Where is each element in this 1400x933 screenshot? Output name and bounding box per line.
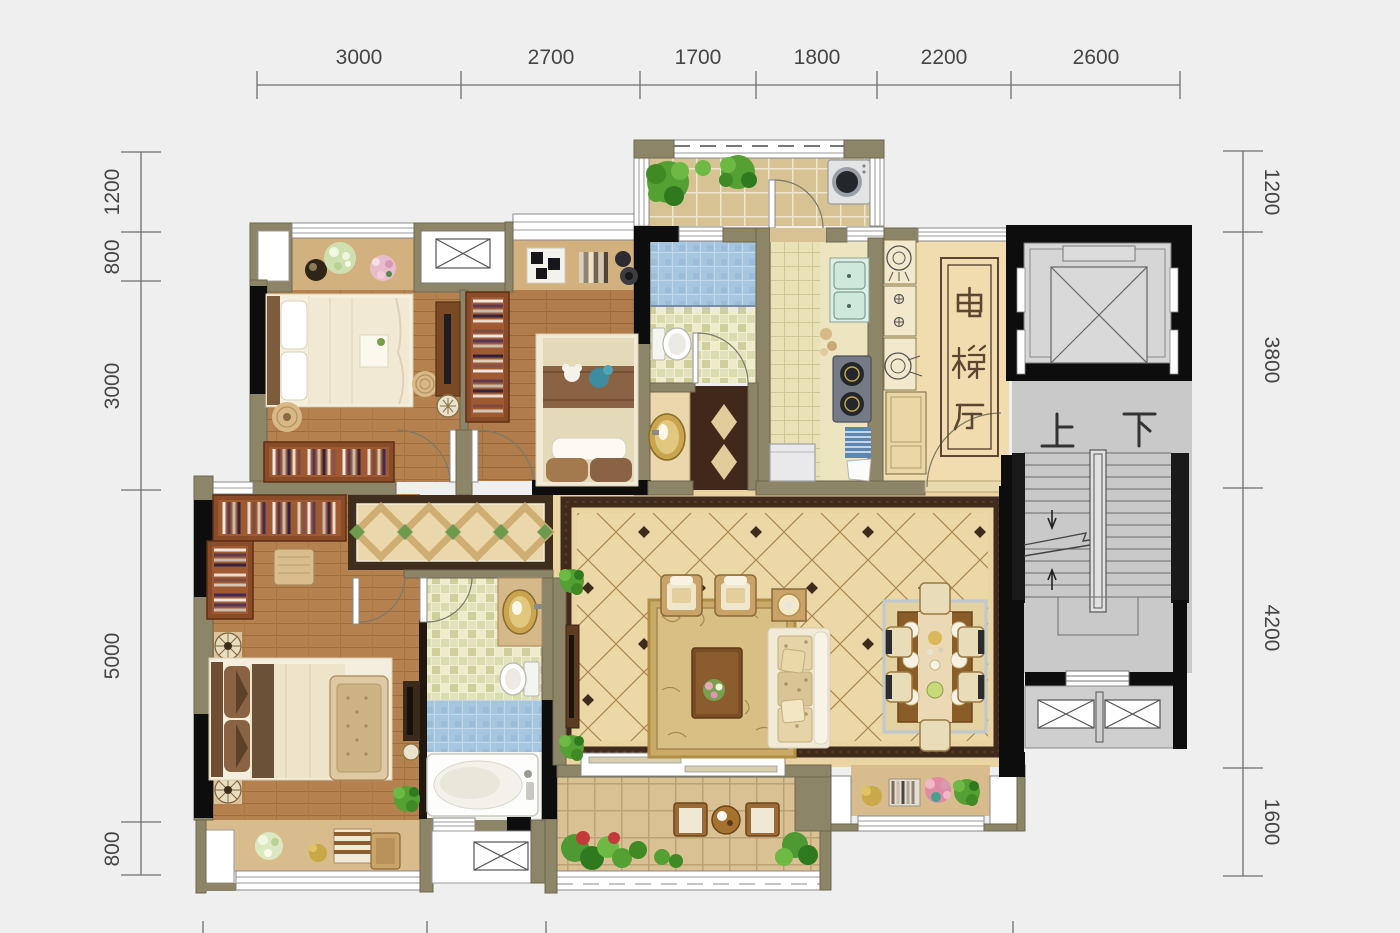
svg-text:3800: 3800 [1260,337,1283,384]
svg-text:1800: 1800 [794,46,841,69]
svg-text:4200: 4200 [1260,605,1283,652]
svg-text:2700: 2700 [528,46,575,69]
svg-text:5000: 5000 [101,633,124,680]
svg-text:800: 800 [101,831,124,866]
svg-text:800: 800 [101,239,124,274]
svg-text:1700: 1700 [675,46,722,69]
svg-text:1200: 1200 [1260,169,1283,216]
svg-text:1200: 1200 [101,169,124,216]
svg-text:2600: 2600 [1073,46,1120,69]
svg-text:1600: 1600 [1260,799,1283,846]
svg-text:3000: 3000 [336,46,383,69]
svg-text:3000: 3000 [101,363,124,410]
svg-text:2200: 2200 [921,46,968,69]
